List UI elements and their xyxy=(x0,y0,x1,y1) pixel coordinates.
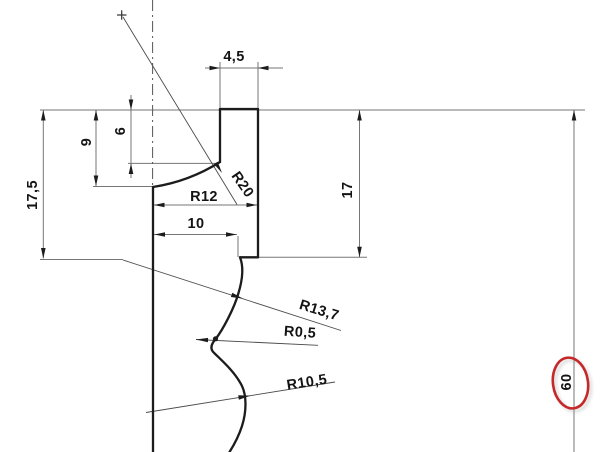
cad-drawing-view: 4,5 6 9 17,5 17 R12 10 R20 R13,7 R0,5 R1… xyxy=(0,0,600,452)
arrow-9-bottom xyxy=(94,176,99,187)
dimension-lines xyxy=(40,62,585,452)
arrow-r0-5 xyxy=(196,338,208,342)
r0-5-point-dot xyxy=(213,336,218,341)
dim-label-10: 10 xyxy=(188,217,205,232)
profile-r10-5-arc xyxy=(211,339,245,452)
dim-label-17: 17 xyxy=(341,182,356,199)
dim-label-60: 60 xyxy=(560,374,575,391)
dim-label-r12: R12 xyxy=(190,190,218,205)
center-point-marker xyxy=(117,10,127,19)
arrow-6-bottom xyxy=(129,164,134,175)
arrow-r13-7 xyxy=(231,293,243,299)
profile-outline xyxy=(153,109,258,452)
dim-label-6: 6 xyxy=(114,127,129,135)
arrow-4-5-left xyxy=(210,66,221,70)
radius-label-r0-5: R0,5 xyxy=(283,325,316,342)
arrowheads xyxy=(41,66,576,400)
dim-label-4-5: 4,5 xyxy=(223,50,244,65)
dim-label-9: 9 xyxy=(80,138,95,146)
arrow-17-5-bottom xyxy=(41,248,46,259)
arrow-10-right xyxy=(226,232,237,236)
leader-lines xyxy=(123,17,341,413)
arrow-17-top xyxy=(357,110,362,121)
arrow-17-bottom xyxy=(357,247,362,257)
arrow-9-top xyxy=(94,110,99,121)
arrow-6-top xyxy=(129,100,134,111)
arrow-60-top xyxy=(572,110,577,121)
arrow-17-5-top xyxy=(41,110,46,121)
arrow-10-left xyxy=(155,232,166,236)
dim-label-17-5: 17,5 xyxy=(26,180,41,210)
profile-r20-arc xyxy=(153,162,220,187)
arrow-4-5-right xyxy=(258,66,269,70)
arrow-r12-right xyxy=(247,203,258,207)
arrow-r20 xyxy=(214,162,222,173)
arrow-r12-left xyxy=(154,203,165,207)
